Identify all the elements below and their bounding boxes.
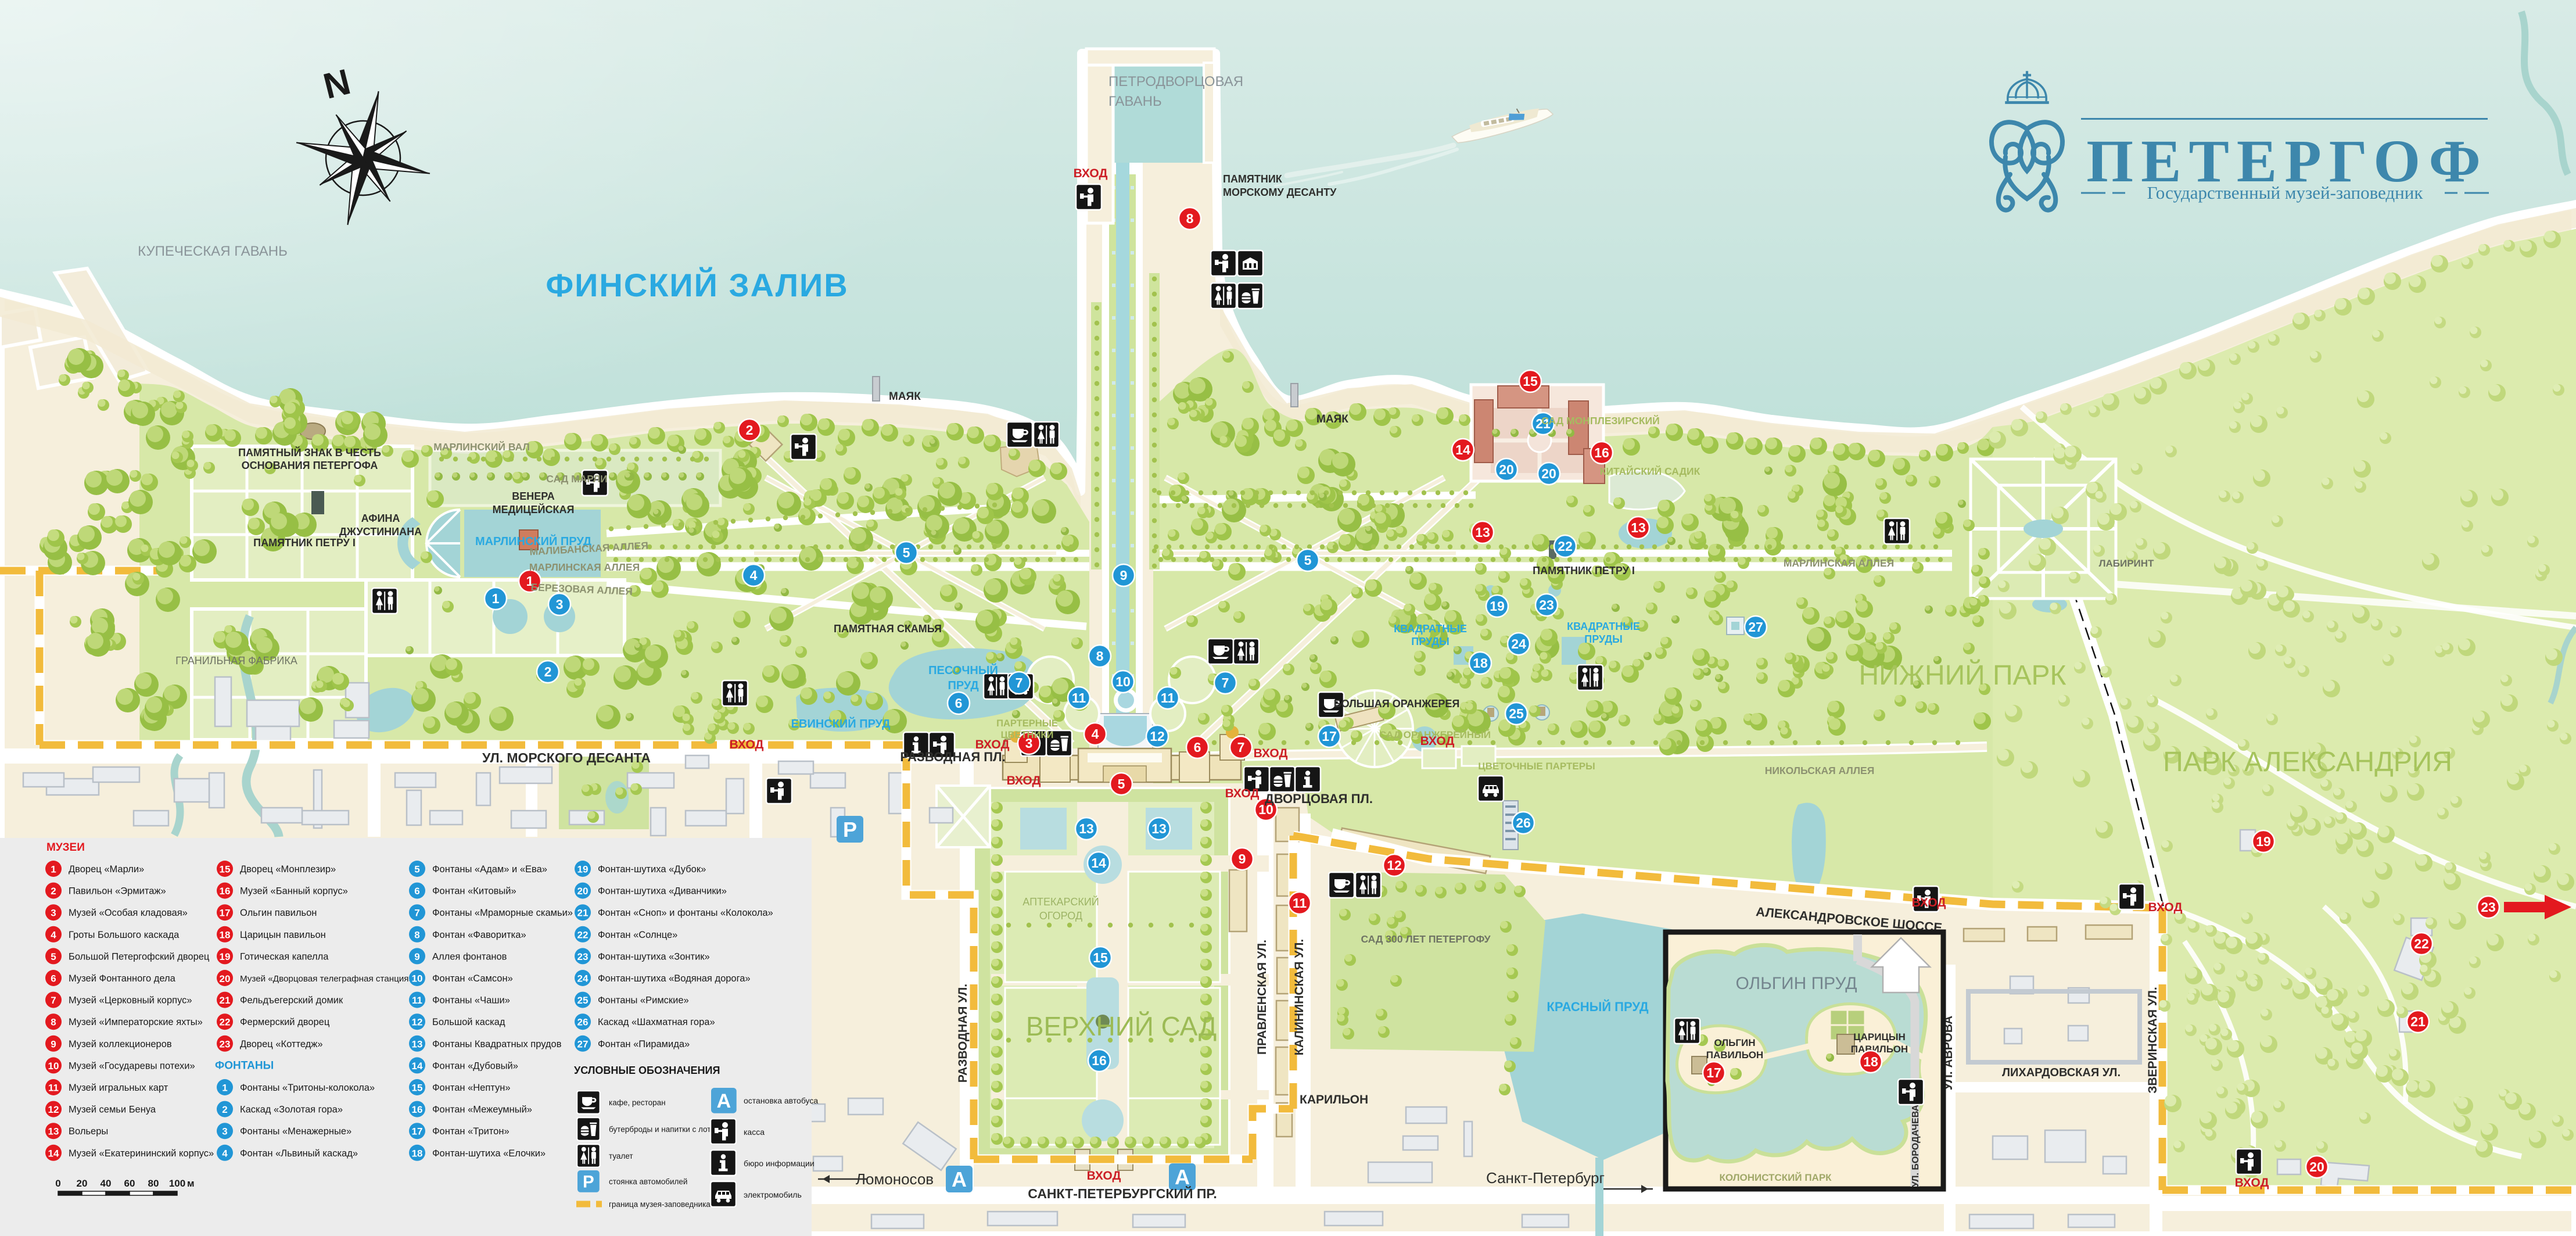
svg-text:16: 16: [412, 1104, 423, 1115]
svg-text:бутерброды и напитки с лотка: бутерброды и напитки с лотка: [609, 1125, 719, 1134]
svg-text:6: 6: [955, 696, 963, 711]
svg-text:Фонтаны «Адам» и «Ева»: Фонтаны «Адам» и «Ева»: [432, 864, 547, 875]
svg-text:ПАРК АЛЕКСАНДРИЯ: ПАРК АЛЕКСАНДРИЯ: [2163, 747, 2452, 778]
svg-text:21: 21: [220, 995, 231, 1006]
svg-text:16: 16: [1092, 1053, 1107, 1068]
svg-text:туалет: туалет: [609, 1152, 633, 1160]
svg-text:Большой каскад: Большой каскад: [432, 1017, 505, 1027]
svg-text:15: 15: [412, 1083, 423, 1094]
svg-text:13: 13: [1079, 821, 1094, 836]
svg-text:7: 7: [1016, 675, 1023, 690]
svg-text:ЛИХАРДОВСКАЯ УЛ.: ЛИХАРДОВСКАЯ УЛ.: [2002, 1066, 2121, 1079]
svg-text:НИЖНИЙ ПАРК: НИЖНИЙ ПАРК: [1859, 659, 2066, 691]
svg-text:19: 19: [1490, 599, 1505, 614]
svg-text:27: 27: [1748, 619, 1763, 635]
svg-text:40: 40: [101, 1178, 112, 1189]
svg-text:ВХОД: ВХОД: [2235, 1176, 2269, 1190]
svg-text:остановка автобуса: остановка автобуса: [744, 1096, 818, 1105]
svg-text:ЗВЕРИНСКАЯ УЛ.: ЗВЕРИНСКАЯ УЛ.: [2146, 987, 2159, 1094]
svg-text:11: 11: [412, 995, 422, 1006]
svg-text:КИТАЙСКИЙ САДИК: КИТАЙСКИЙ САДИК: [1600, 465, 1700, 477]
svg-text:Музей «Екатерининский корпус»: Музей «Екатерининский корпус»: [69, 1148, 214, 1159]
svg-text:19: 19: [577, 864, 589, 875]
svg-text:Фонтаны «Римские»: Фонтаны «Римские»: [598, 995, 689, 1006]
svg-text:Фонтаны «Менажерные»: Фонтаны «Менажерные»: [240, 1126, 351, 1137]
svg-text:17: 17: [220, 908, 231, 919]
svg-text:Каскад «Золотая гора»: Каскад «Золотая гора»: [240, 1105, 343, 1115]
svg-text:2: 2: [544, 664, 552, 679]
svg-text:7: 7: [1222, 675, 1229, 690]
svg-text:ФОНТАНЫ: ФОНТАНЫ: [215, 1059, 274, 1072]
svg-text:МУЗЕИ: МУЗЕИ: [46, 841, 85, 854]
svg-text:6: 6: [1194, 740, 1201, 755]
svg-text:ЕВИНСКИЙ ПРУД: ЕВИНСКИЙ ПРУД: [791, 716, 891, 730]
svg-text:13: 13: [1151, 821, 1167, 836]
svg-text:КУПЕЧЕСКАЯ ГАВАНЬ: КУПЕЧЕСКАЯ ГАВАНЬ: [138, 243, 288, 259]
svg-text:ПЕТРОДВОРЦОВАЯ: ПЕТРОДВОРЦОВАЯ: [1108, 74, 1243, 89]
svg-text:КВАДРАТНЫЕ: КВАДРАТНЫЕ: [1394, 623, 1467, 635]
svg-text:3: 3: [51, 908, 56, 919]
svg-text:Фонтан «Самсон»: Фонтан «Самсон»: [432, 973, 513, 984]
svg-text:Фонтан-шутиха «Зонтик»: Фонтан-шутиха «Зонтик»: [598, 951, 710, 962]
svg-text:22: 22: [220, 1017, 231, 1028]
svg-text:Фонтаны «Мраморные скамьи»: Фонтаны «Мраморные скамьи»: [432, 908, 573, 918]
svg-text:3: 3: [222, 1126, 227, 1137]
svg-text:25: 25: [577, 995, 589, 1006]
svg-text:Музей «Особая кладовая»: Музей «Особая кладовая»: [69, 908, 188, 918]
svg-text:23: 23: [220, 1038, 231, 1049]
svg-text:ПРУД: ПРУД: [948, 679, 978, 692]
svg-text:ФИНСКИЙ ЗАЛИВ: ФИНСКИЙ ЗАЛИВ: [546, 267, 848, 303]
svg-text:ПАВИЛЬОН: ПАВИЛЬОН: [1851, 1044, 1908, 1055]
svg-text:Фонтаны «Чаши»: Фонтаны «Чаши»: [432, 995, 510, 1006]
svg-text:Ольгин павильон: Ольгин павильон: [240, 908, 317, 918]
svg-text:Фонтан-шутиха «Дубок»: Фонтан-шутиха «Дубок»: [598, 864, 706, 875]
svg-text:Фонтаны «Тритоны-колокола»: Фонтаны «Тритоны-колокола»: [240, 1083, 375, 1093]
svg-text:7: 7: [414, 908, 419, 919]
svg-text:Фонтан «Межеумный»: Фонтан «Межеумный»: [432, 1105, 532, 1115]
svg-text:граница музея-заповедника: граница музея-заповедника: [609, 1200, 711, 1209]
svg-text:15: 15: [1093, 950, 1108, 965]
svg-text:11: 11: [1293, 895, 1307, 911]
svg-text:АПТЕКАРСКИЙ: АПТЕКАРСКИЙ: [1022, 895, 1099, 908]
svg-text:Фонтан «Дубовый»: Фонтан «Дубовый»: [432, 1061, 518, 1071]
svg-text:Фонтан-шутиха «Диванчики»: Фонтан-шутиха «Диванчики»: [598, 886, 727, 897]
svg-text:80: 80: [148, 1178, 159, 1189]
svg-text:23: 23: [577, 951, 589, 962]
svg-text:ПАРТЕРНЫЕ: ПАРТЕРНЫЕ: [996, 718, 1058, 729]
svg-text:Фонтан «Китовый»: Фонтан «Китовый»: [432, 886, 516, 897]
svg-text:4: 4: [750, 568, 758, 583]
svg-text:20: 20: [77, 1178, 88, 1189]
svg-text:САНКТ-ПЕТЕРБУРГСКИЙ ПР.: САНКТ-ПЕТЕРБУРГСКИЙ ПР.: [1028, 1185, 1217, 1201]
svg-text:ГРАНИЛЬНАЯ ФАБРИКА: ГРАНИЛЬНАЯ ФАБРИКА: [175, 655, 297, 667]
svg-text:Музей «Государевы потехи»: Музей «Государевы потехи»: [69, 1061, 195, 1071]
svg-text:ПАМЯТНИК ПЕТРУ I: ПАМЯТНИК ПЕТРУ I: [253, 537, 356, 549]
svg-text:МАЯК: МАЯК: [1316, 413, 1348, 425]
svg-text:10: 10: [48, 1061, 59, 1072]
svg-text:24: 24: [1511, 636, 1526, 651]
svg-text:Царицын павильон: Царицын павильон: [240, 930, 326, 940]
svg-text:Музей Фонтанного дела: Музей Фонтанного дела: [69, 973, 176, 984]
svg-text:САД 300 ЛЕТ ПЕТЕРГОФУ: САД 300 ЛЕТ ПЕТЕРГОФУ: [1361, 933, 1491, 945]
svg-text:20: 20: [2309, 1159, 2324, 1174]
svg-text:21: 21: [2410, 1014, 2426, 1029]
svg-text:20: 20: [1499, 462, 1514, 477]
svg-text:МЕДИЦЕЙСКАЯ: МЕДИЦЕЙСКАЯ: [493, 503, 575, 515]
svg-text:ВХОД: ВХОД: [975, 738, 1010, 751]
svg-text:м: м: [187, 1178, 195, 1189]
svg-text:1: 1: [51, 864, 56, 875]
svg-text:16: 16: [220, 886, 231, 897]
svg-text:ВЕРХНИЙ САД: ВЕРХНИЙ САД: [1026, 1011, 1217, 1041]
svg-text:8: 8: [51, 1017, 56, 1028]
svg-text:Фонтан-шутиха «Елочки»: Фонтан-шутиха «Елочки»: [432, 1148, 546, 1159]
svg-text:5: 5: [1118, 776, 1125, 791]
svg-text:Музей «Императорские яхты»: Музей «Императорские яхты»: [69, 1017, 203, 1027]
svg-text:17: 17: [1322, 729, 1337, 744]
svg-text:ГАВАНЬ: ГАВАНЬ: [1108, 94, 1162, 109]
svg-text:9: 9: [1120, 568, 1128, 583]
svg-text:Фермерский дворец: Фермерский дворец: [240, 1017, 330, 1027]
svg-text:электромобиль: электромобиль: [744, 1190, 802, 1199]
svg-text:0: 0: [55, 1178, 60, 1189]
svg-text:4: 4: [51, 929, 56, 940]
svg-text:ПРАВЛЕНСКАЯ УЛ.: ПРАВЛЕНСКАЯ УЛ.: [1255, 940, 1269, 1055]
svg-text:ВХОД: ВХОД: [1007, 774, 1041, 787]
svg-text:100: 100: [169, 1178, 185, 1189]
svg-text:11: 11: [1072, 690, 1086, 705]
svg-text:24: 24: [577, 973, 589, 984]
svg-text:5: 5: [1304, 553, 1312, 568]
svg-text:5: 5: [903, 545, 910, 560]
svg-text:ВХОД: ВХОД: [1225, 787, 1260, 800]
svg-text:ПАМЯТНЫЙ ЗНАК В ЧЕСТЬ: ПАМЯТНЫЙ ЗНАК В ЧЕСТЬ: [238, 446, 381, 458]
svg-text:САД МОНПЛЕЗИРСКИЙ: САД МОНПЛЕЗИРСКИЙ: [1541, 414, 1659, 427]
svg-text:Фонтан-шутиха «Водяная дорога»: Фонтан-шутиха «Водяная дорога»: [598, 973, 751, 984]
svg-text:20: 20: [1541, 466, 1556, 481]
svg-text:Аллея фонтанов: Аллея фонтанов: [432, 951, 507, 962]
svg-text:14: 14: [1455, 442, 1470, 457]
svg-text:6: 6: [51, 973, 56, 984]
svg-text:15: 15: [1523, 374, 1538, 389]
svg-text:5: 5: [51, 951, 56, 962]
svg-text:1: 1: [222, 1083, 227, 1094]
svg-text:НИКОЛЬСКАЯ АЛЛЕЯ: НИКОЛЬСКАЯ АЛЛЕЯ: [1765, 765, 1875, 776]
svg-text:КВАДРАТНЫЕ: КВАДРАТНЫЕ: [1567, 621, 1640, 632]
svg-text:Фонтан «Тритон»: Фонтан «Тритон»: [432, 1126, 510, 1137]
svg-text:МОРСКОМУ ДЕСАНТУ: МОРСКОМУ ДЕСАНТУ: [1223, 187, 1337, 198]
svg-text:Фонтан «Львиный каскад»: Фонтан «Львиный каскад»: [240, 1148, 358, 1159]
svg-text:Дворец «Коттедж»: Дворец «Коттедж»: [240, 1039, 323, 1049]
svg-text:ОГОРОД: ОГОРОД: [1039, 910, 1082, 922]
svg-text:КАРИЛЬОН: КАРИЛЬОН: [1300, 1093, 1368, 1106]
svg-text:МАРЛИНСКАЯ АЛЛЕЯ: МАРЛИНСКАЯ АЛЛЕЯ: [529, 561, 640, 573]
svg-text:ВХОД: ВХОД: [1087, 1169, 1121, 1183]
svg-text:БОЛЬШАЯ ОРАНЖЕРЕЯ: БОЛЬШАЯ ОРАНЖЕРЕЯ: [1334, 698, 1460, 710]
svg-text:Вольеры: Вольеры: [69, 1126, 108, 1137]
svg-text:4: 4: [1092, 726, 1099, 741]
svg-text:ВХОД: ВХОД: [1420, 735, 1455, 748]
svg-text:ЛАБИРИНТ: ЛАБИРИНТ: [2099, 558, 2154, 569]
svg-text:ОЛЬГИН ПРУД: ОЛЬГИН ПРУД: [1735, 974, 1857, 993]
svg-text:Фонтан «Солнце»: Фонтан «Солнце»: [598, 930, 677, 940]
svg-text:ПАМЯТНИК ПЕТРУ I: ПАМЯТНИК ПЕТРУ I: [1533, 565, 1635, 576]
svg-text:4: 4: [222, 1148, 228, 1159]
svg-text:бюро информации: бюро информации: [744, 1159, 815, 1168]
svg-text:ЦВЕТОЧНЫЕ ПАРТЕРЫ: ЦВЕТОЧНЫЕ ПАРТЕРЫ: [1478, 761, 1595, 772]
svg-text:Павильон «Эрмитаж»: Павильон «Эрмитаж»: [69, 886, 166, 897]
svg-text:9: 9: [51, 1038, 56, 1049]
svg-text:Каскад «Шахматная гора»: Каскад «Шахматная гора»: [598, 1017, 715, 1027]
svg-text:22: 22: [2414, 936, 2429, 951]
svg-text:20: 20: [220, 973, 231, 984]
svg-text:Санкт-Петербург: Санкт-Петербург: [1486, 1169, 1605, 1187]
svg-text:Фонтан «Нептун»: Фонтан «Нептун»: [432, 1083, 511, 1093]
svg-text:7: 7: [1237, 740, 1245, 755]
svg-text:5: 5: [414, 864, 419, 875]
svg-text:11: 11: [1161, 690, 1175, 705]
svg-text:МАРЛИНСКИЙ ВАЛ: МАРЛИНСКИЙ ВАЛ: [433, 440, 530, 453]
svg-text:19: 19: [2256, 834, 2271, 849]
svg-text:ПЕСОЧНЫЙ: ПЕСОЧНЫЙ: [928, 663, 998, 677]
svg-text:11: 11: [48, 1083, 59, 1094]
svg-text:60: 60: [124, 1178, 135, 1189]
svg-text:Фонтан «Пирамида»: Фонтан «Пирамида»: [598, 1039, 690, 1049]
svg-text:17: 17: [1706, 1065, 1721, 1080]
svg-text:ПРУДЫ: ПРУДЫ: [1411, 636, 1449, 647]
svg-text:14: 14: [412, 1061, 423, 1072]
svg-text:10: 10: [412, 973, 423, 984]
svg-text:27: 27: [577, 1038, 589, 1049]
svg-text:13: 13: [1475, 525, 1490, 540]
svg-text:17: 17: [412, 1126, 423, 1137]
svg-text:13: 13: [1631, 520, 1646, 535]
svg-text:ДЖУСТИНИАНА: ДЖУСТИНИАНА: [339, 526, 422, 538]
svg-text:Музей «Церковный корпус»: Музей «Церковный корпус»: [69, 995, 192, 1006]
svg-text:касса: касса: [744, 1127, 765, 1137]
svg-text:10: 10: [1115, 674, 1131, 689]
svg-text:САД МАРЛИ: САД МАРЛИ: [546, 473, 607, 485]
svg-text:13: 13: [412, 1038, 423, 1049]
svg-text:Музей игральных карт: Музей игральных карт: [69, 1083, 168, 1093]
svg-text:кафе, ресторан: кафе, ресторан: [609, 1098, 666, 1107]
svg-text:Музей коллекционеров: Музей коллекционеров: [69, 1039, 172, 1049]
svg-text:25: 25: [1509, 706, 1524, 721]
svg-text:КАЛИНИНСКАЯ УЛ.: КАЛИНИНСКАЯ УЛ.: [1293, 939, 1306, 1055]
svg-text:23: 23: [1539, 597, 1554, 612]
svg-text:15: 15: [220, 864, 231, 875]
svg-text:Готическая капелла: Готическая капелла: [240, 951, 329, 962]
svg-text:6: 6: [414, 886, 419, 897]
svg-text:АФИНА: АФИНА: [361, 513, 400, 524]
svg-text:Музей «Дворцовая телеграфная с: Музей «Дворцовая телеграфная станция»: [240, 974, 414, 984]
svg-text:18: 18: [1473, 655, 1488, 671]
svg-text:ВЕНЕРА: ВЕНЕРА: [512, 490, 554, 502]
svg-text:МАРЛИНСКАЯ АЛЛЕЯ: МАРЛИНСКАЯ АЛЛЕЯ: [1784, 557, 1894, 569]
svg-text:ПАМЯТНАЯ СКАМЬЯ: ПАМЯТНАЯ СКАМЬЯ: [834, 623, 942, 635]
svg-text:Большой Петергофский дворец: Большой Петергофский дворец: [69, 951, 210, 962]
svg-text:ВХОД: ВХОД: [730, 738, 764, 751]
svg-text:8: 8: [1096, 649, 1104, 664]
svg-text:12: 12: [1150, 729, 1165, 744]
svg-text:3: 3: [556, 597, 564, 612]
svg-text:УЛ. МОРСКОГО ДЕСАНТА: УЛ. МОРСКОГО ДЕСАНТА: [482, 750, 651, 765]
svg-text:14: 14: [1091, 855, 1106, 870]
svg-text:19: 19: [220, 951, 231, 962]
svg-text:Дворец «Марли»: Дворец «Марли»: [69, 864, 144, 875]
svg-text:КРАСНЫЙ ПРУД: КРАСНЫЙ ПРУД: [1547, 999, 1649, 1014]
svg-text:12: 12: [412, 1017, 423, 1028]
svg-text:Фонтан «Фаворитка»: Фонтан «Фаворитка»: [432, 930, 526, 940]
svg-text:ВХОД: ВХОД: [2148, 901, 2183, 914]
svg-text:18: 18: [1863, 1054, 1878, 1069]
svg-text:ПАМЯТНИК: ПАМЯТНИК: [1223, 173, 1283, 185]
svg-text:КОЛОНИСТСКИЙ ПАРК: КОЛОНИСТСКИЙ ПАРК: [1719, 1172, 1832, 1183]
svg-text:22: 22: [1558, 539, 1573, 554]
svg-text:13: 13: [48, 1126, 59, 1137]
svg-text:ВХОД: ВХОД: [1074, 167, 1108, 180]
svg-text:26: 26: [1516, 815, 1531, 830]
svg-text:ДВОРЦОВАЯ ПЛ.: ДВОРЦОВАЯ ПЛ.: [1265, 791, 1373, 806]
svg-text:ВХОД: ВХОД: [1912, 896, 1946, 909]
svg-text:16: 16: [1594, 445, 1609, 460]
svg-text:18: 18: [220, 929, 231, 940]
svg-text:Гроты Большого каскада: Гроты Большого каскада: [69, 930, 180, 940]
svg-text:МАЯК: МАЯК: [889, 390, 921, 403]
svg-text:УСЛОВНЫЕ ОБОЗНАЧЕНИЯ: УСЛОВНЫЕ ОБОЗНАЧЕНИЯ: [574, 1065, 720, 1076]
svg-text:Ломоносов: Ломоносов: [856, 1170, 934, 1188]
svg-text:Дворец «Монплезир»: Дворец «Монплезир»: [240, 864, 336, 875]
svg-text:ВХОД: ВХОД: [1254, 747, 1288, 760]
svg-text:21: 21: [577, 908, 589, 919]
svg-text:14: 14: [48, 1148, 59, 1159]
svg-text:9: 9: [1239, 851, 1246, 866]
svg-text:20: 20: [577, 886, 589, 897]
svg-text:ОЛЬГИН: ОЛЬГИН: [1714, 1037, 1755, 1048]
svg-text:22: 22: [577, 929, 589, 940]
svg-text:8: 8: [414, 929, 419, 940]
svg-text:РАЗВОДНАЯ ПЛ.: РАЗВОДНАЯ ПЛ.: [900, 750, 1005, 764]
svg-text:Музей «Банный корпус»: Музей «Банный корпус»: [240, 886, 348, 897]
svg-text:стоянка автомобилей: стоянка автомобилей: [609, 1177, 687, 1186]
svg-text:Государственный музей-заповедн: Государственный музей-заповедник: [2147, 182, 2424, 203]
svg-text:12: 12: [1387, 858, 1402, 873]
svg-text:9: 9: [414, 951, 419, 962]
svg-text:23: 23: [2481, 900, 2496, 915]
svg-text:8: 8: [1186, 211, 1194, 226]
svg-text:18: 18: [412, 1148, 423, 1159]
svg-text:ЦАРИЦЫН: ЦАРИЦЫН: [1853, 1031, 1906, 1042]
svg-text:12: 12: [48, 1104, 59, 1115]
svg-text:Фонтаны Квадратных прудов: Фонтаны Квадратных прудов: [432, 1039, 562, 1049]
svg-text:2: 2: [746, 422, 754, 438]
svg-text:Фельдъегерский домик: Фельдъегерский домик: [240, 995, 343, 1006]
svg-text:Фонтан «Сноп» и фонтаны «Колок: Фонтан «Сноп» и фонтаны «Колокола»: [598, 908, 773, 918]
svg-text:26: 26: [577, 1017, 589, 1028]
svg-text:РАЗВОДНАЯ УЛ.: РАЗВОДНАЯ УЛ.: [956, 984, 970, 1083]
svg-text:7: 7: [51, 995, 56, 1006]
svg-text:1: 1: [492, 591, 500, 606]
svg-text:ПАВИЛЬОН: ПАВИЛЬОН: [1706, 1049, 1763, 1061]
svg-text:2: 2: [51, 886, 56, 897]
svg-text:2: 2: [222, 1104, 227, 1115]
svg-text:ПРУДЫ: ПРУДЫ: [1584, 633, 1622, 645]
svg-text:УЛ. БОРОДАЧЕВА: УЛ. БОРОДАЧЕВА: [1911, 1105, 1921, 1188]
svg-text:Музей семьи Бенуа: Музей семьи Бенуа: [69, 1105, 156, 1115]
svg-text:ОСНОВАНИЯ ПЕТЕРГОФА: ОСНОВАНИЯ ПЕТЕРГОФА: [242, 460, 378, 471]
